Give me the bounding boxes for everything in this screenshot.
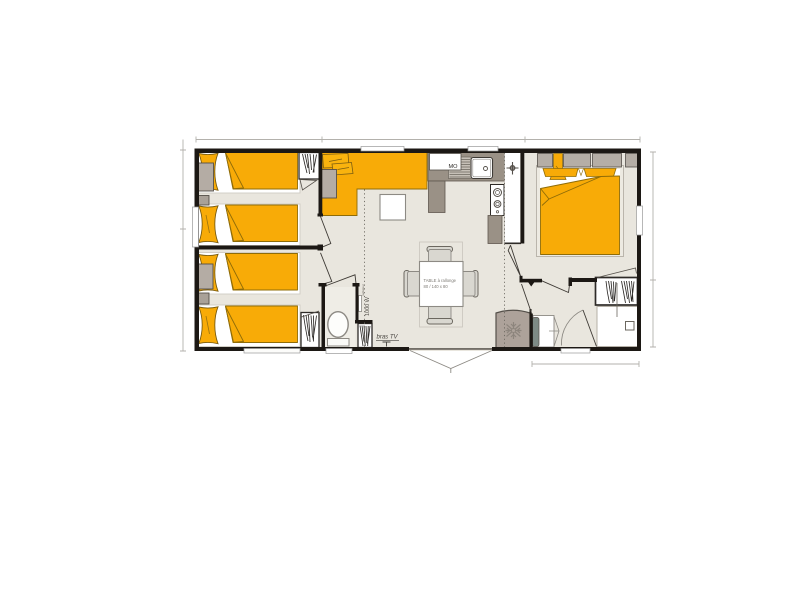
svg-text:80 / 140 x 80: 80 / 140 x 80 (424, 284, 449, 289)
svg-text:1000 W: 1000 W (365, 296, 371, 316)
svg-text:radiateur: radiateur (361, 284, 365, 296)
svg-text:TABLE à rallonge: TABLE à rallonge (424, 278, 457, 283)
svg-text:bras TV: bras TV (377, 335, 399, 341)
svg-text:MO: MO (449, 164, 459, 170)
